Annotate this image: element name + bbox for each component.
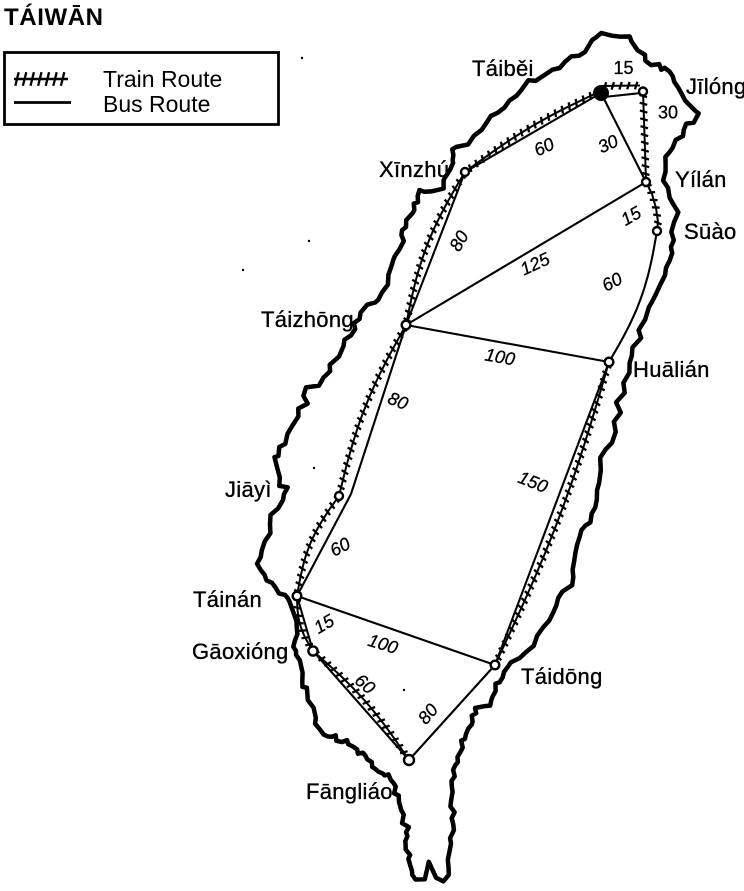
svg-text:Jiāyì: Jiāyì [225, 477, 272, 502]
svg-text:Train Route: Train Route [103, 66, 222, 92]
svg-text:100: 100 [366, 630, 401, 658]
svg-text:Táizhōng: Táizhōng [261, 307, 354, 332]
svg-text:Xīnzhú: Xīnzhú [379, 157, 449, 182]
svg-text:60: 60 [326, 533, 353, 560]
svg-text:60: 60 [351, 670, 379, 698]
svg-text:15: 15 [613, 58, 633, 78]
svg-text:125: 125 [517, 248, 554, 279]
svg-text:Bus Route: Bus Route [103, 91, 210, 117]
svg-text:60: 60 [598, 268, 625, 295]
svg-text:Táinán: Táinán [193, 587, 262, 612]
svg-text:80: 80 [385, 388, 411, 414]
svg-text:Táidōng: Táidōng [521, 664, 603, 689]
svg-text:15: 15 [310, 610, 338, 638]
svg-text:Yílán: Yílán [675, 167, 727, 192]
svg-text:60: 60 [531, 134, 558, 161]
svg-text:150: 150 [515, 467, 550, 497]
svg-text:Sūào: Sūào [684, 219, 737, 244]
svg-text:80: 80 [445, 227, 472, 254]
svg-text:30: 30 [658, 103, 678, 123]
svg-text:30: 30 [595, 131, 622, 158]
svg-text:Gāoxióng: Gāoxióng [192, 639, 289, 664]
svg-text:100: 100 [483, 345, 516, 370]
svg-text:80: 80 [414, 700, 442, 728]
svg-text:15: 15 [617, 202, 645, 230]
svg-text:Táiběi: Táiběi [472, 56, 534, 81]
svg-text:Huālián: Huālián [633, 357, 710, 382]
svg-text:TÁIWĀN: TÁIWĀN [4, 3, 104, 31]
svg-text:Jīlóng: Jīlóng [686, 74, 744, 99]
svg-text:Fāngliáo: Fāngliáo [306, 779, 393, 804]
